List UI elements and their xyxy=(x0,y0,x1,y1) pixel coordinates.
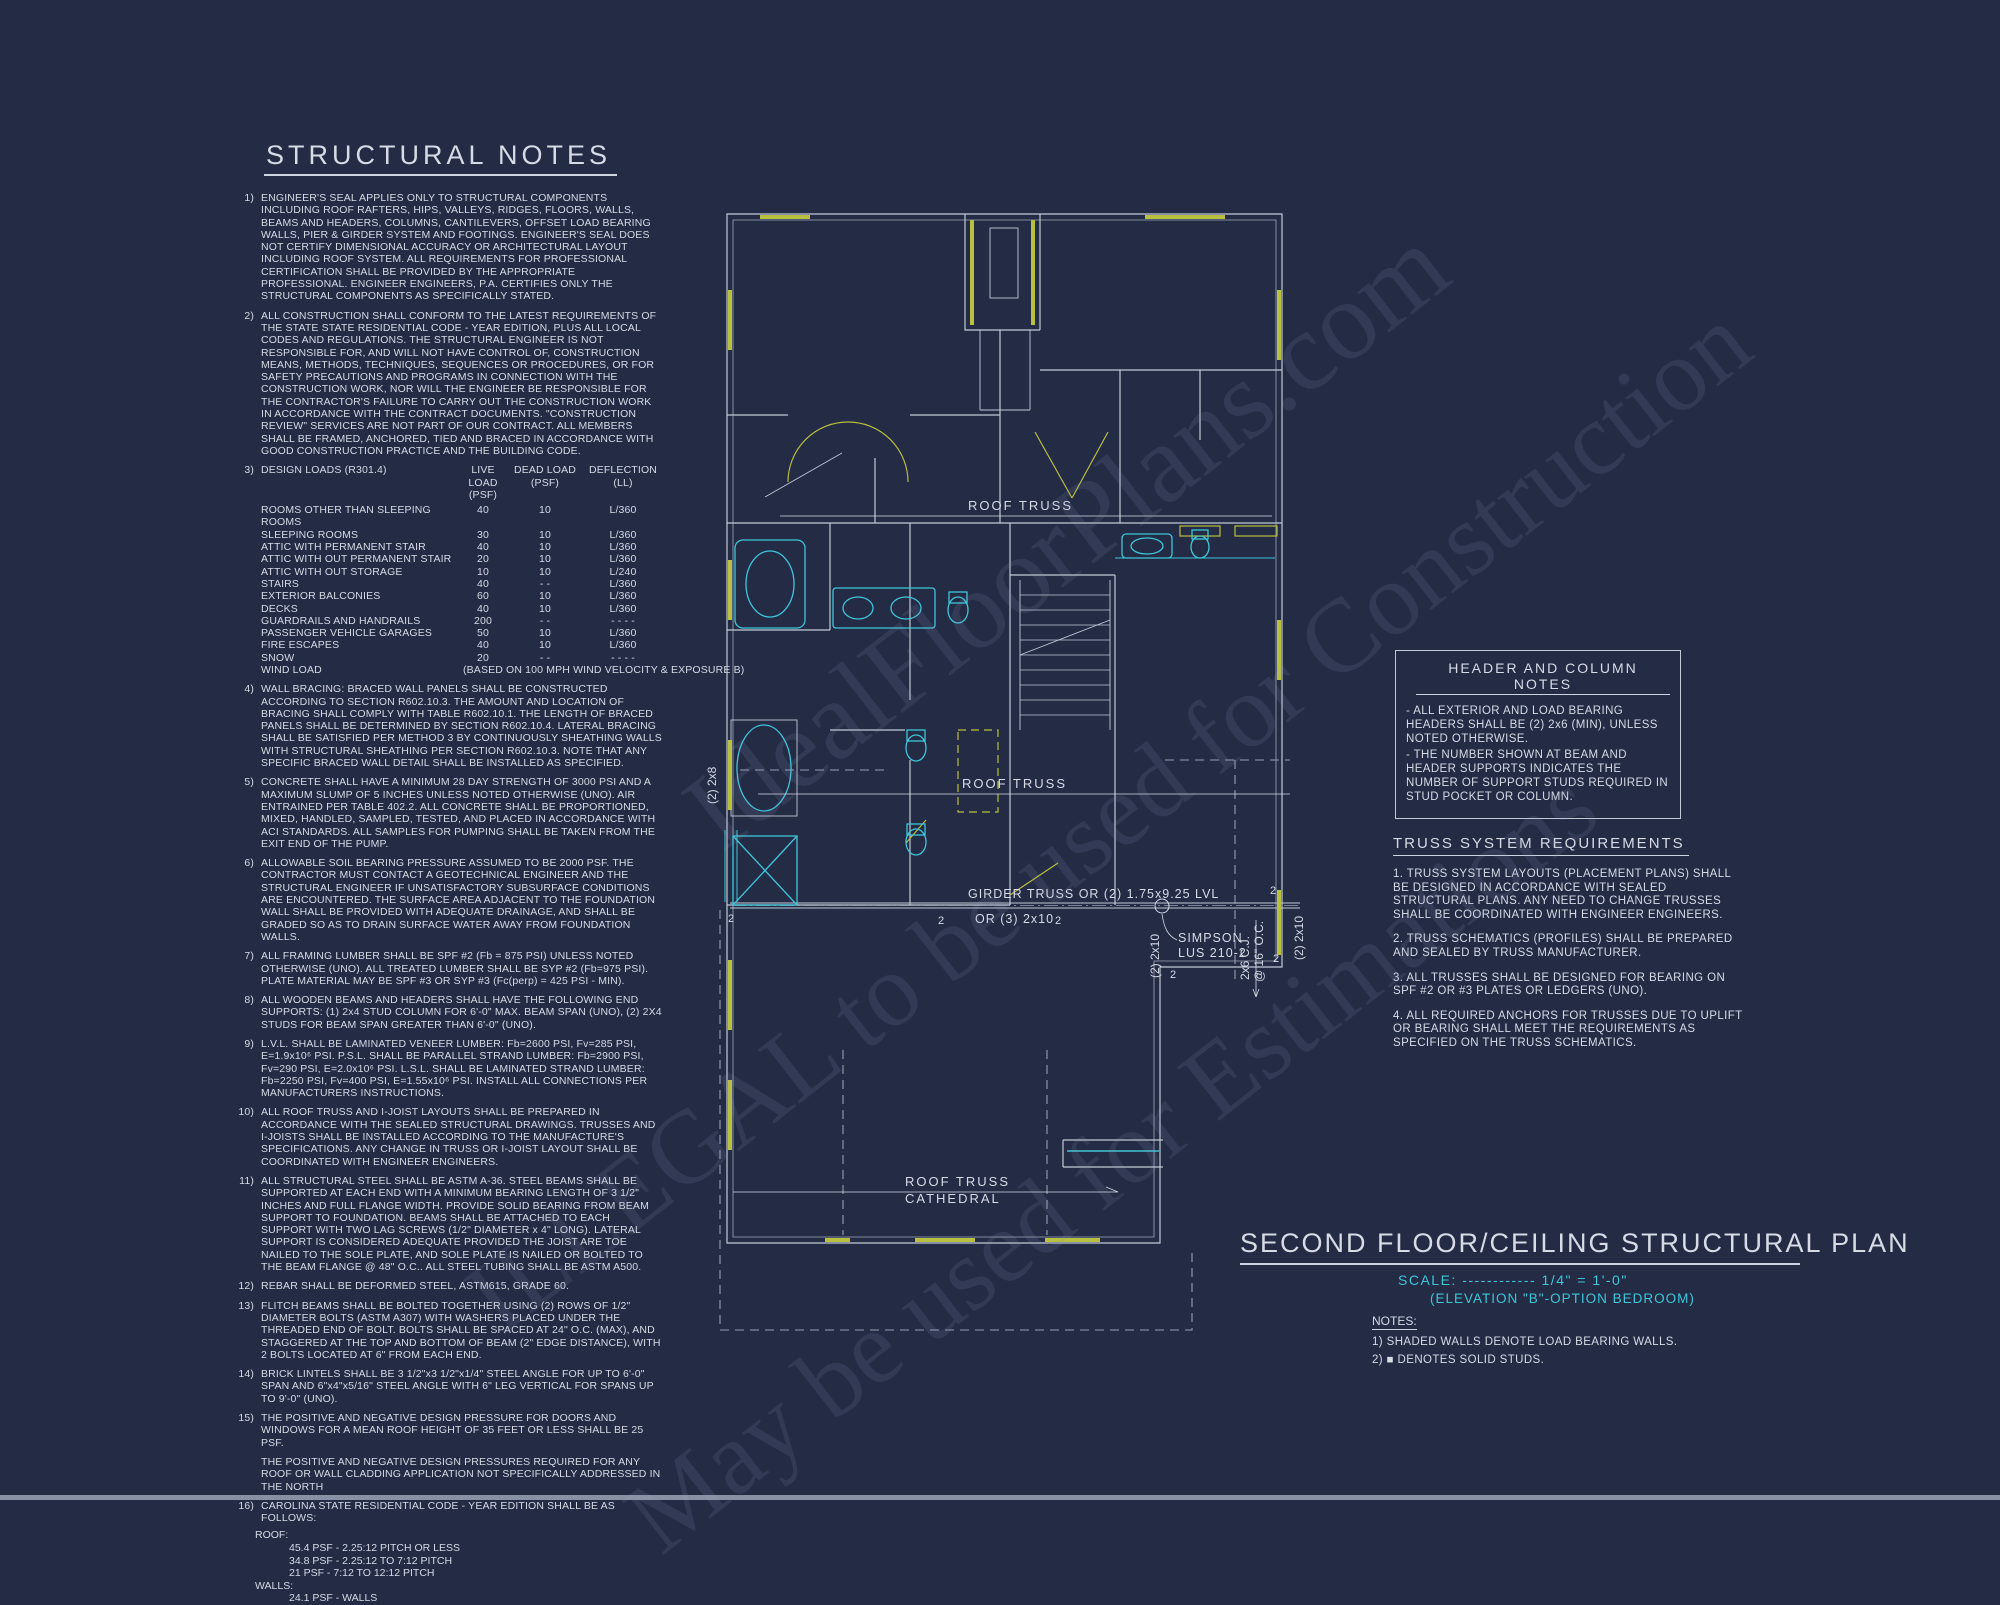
table-cell: 10 xyxy=(509,541,581,553)
note-8: 8) ALL WOODEN BEAMS AND HEADERS SHALL HA… xyxy=(238,994,662,1031)
note-number xyxy=(238,1456,254,1493)
note-text: L.V.L. SHALL BE LAMINATED VENEER LUMBER:… xyxy=(261,1038,662,1099)
note-number: 15) xyxy=(238,1412,254,1449)
note-number: 8) xyxy=(238,994,254,1031)
note-text: ALL ROOF TRUSS AND I-JOIST LAYOUTS SHALL… xyxy=(261,1106,662,1167)
truss-system-requirements: TRUSS SYSTEM REQUIREMENTS 1. TRUSS SYSTE… xyxy=(1393,835,1743,1062)
note-3-design-loads: 3) DESIGN LOADS (R301.4) LIVE LOAD (PSF)… xyxy=(238,464,662,676)
col-header-live-unit: (PSF) xyxy=(457,489,509,501)
title-note-2: 2) ■ DENOTES SOLID STUDS. xyxy=(1372,1354,1800,1366)
note-text: WALL BRACING: BRACED WALL PANELS SHALL B… xyxy=(261,683,662,769)
table-cell: 10 xyxy=(509,627,581,639)
truss-requirement: 4. ALL REQUIRED ANCHORS FOR TRUSSES DUE … xyxy=(1393,1010,1743,1051)
note-text: ALL CONSTRUCTION SHALL CONFORM TO THE LA… xyxy=(261,310,662,458)
plan-labels: ROOF TRUSS ROOF TRUSS GIRDER TRUSS OR (2… xyxy=(705,498,1306,1206)
note-number: 6) xyxy=(238,857,254,943)
design-loads-table: DESIGN LOADS (R301.4) LIVE LOAD (PSF) DE… xyxy=(261,464,665,676)
simpson-label-2: LUS 210-2 xyxy=(1178,946,1247,960)
table-cell: - - xyxy=(509,578,581,590)
table-cell: 10 xyxy=(509,603,581,615)
note-14: 14) BRICK LINTELS SHALL BE 3 1/2"x3 1/2"… xyxy=(238,1368,662,1405)
note-text: THE POSITIVE AND NEGATIVE DESIGN PRESSUR… xyxy=(261,1412,662,1449)
table-cell: L/360 xyxy=(581,504,665,529)
plumbing-fixtures xyxy=(725,530,1275,1151)
cathedral-label-2: CATHEDRAL xyxy=(905,1191,1001,1206)
note-11: 11) ALL STRUCTURAL STEEL SHALL BE ASTM A… xyxy=(238,1175,662,1273)
note-16-detail: ROOF: 45.4 PSF - 2.25:12 PITCH OR LESS 3… xyxy=(261,1529,662,1605)
toilet xyxy=(906,829,926,855)
design-loads-label: DESIGN LOADS (R301.4) xyxy=(261,464,457,504)
note-16: 16) CAROLINA STATE RESIDENTIAL CODE - YE… xyxy=(238,1500,662,1525)
note-number: 3) xyxy=(238,464,254,676)
title-notes-label: NOTES: xyxy=(1372,1314,1417,1330)
table-cell: L/360 xyxy=(581,541,665,553)
note-12: 12) REBAR SHALL BE DEFORMED STEEL, ASTM6… xyxy=(238,1280,662,1292)
table-cell: 200 xyxy=(457,615,509,627)
table-cell: 40 xyxy=(457,603,509,615)
table-cell: L/360 xyxy=(581,553,665,565)
scale-note: SCALE: ------------ 1/4" = 1'-0" xyxy=(1398,1272,1800,1288)
table-cell: L/360 xyxy=(581,578,665,590)
table-row-name: DECKS xyxy=(261,603,457,615)
walls-label: WALLS: xyxy=(255,1580,662,1593)
note-text: CAROLINA STATE RESIDENTIAL CODE - YEAR E… xyxy=(261,1500,662,1525)
table-cell: 20 xyxy=(457,652,509,664)
stud-count: 2 xyxy=(938,915,944,927)
table-cell: 10 xyxy=(509,590,581,602)
note-number: 2) xyxy=(238,310,254,458)
table-cell: L/360 xyxy=(581,529,665,541)
table-cell: 40 xyxy=(457,578,509,590)
stud-count: 2 xyxy=(1270,885,1276,897)
girder-truss-label: GIRDER TRUSS OR (2) 1.75x9.25 LVL xyxy=(968,887,1219,901)
col-header-defl: DEFLECTION (LL) xyxy=(581,464,665,504)
table-row-name: SNOW xyxy=(261,652,457,664)
note-text: ENGINEER'S SEAL APPLIES ONLY TO STRUCTUR… xyxy=(261,192,662,303)
wind-load-note: (BASED ON 100 MPH WIND VELOCITY & EXPOSU… xyxy=(457,664,665,676)
note-number: 16) xyxy=(238,1500,254,1525)
ceiling-joist-label-2: @ 16" O.C. xyxy=(1252,921,1266,982)
header-markers xyxy=(788,422,1277,895)
header-column-note: - ALL EXTERIOR AND LOAD BEARING HEADERS … xyxy=(1406,704,1670,746)
table-cell: 10 xyxy=(457,566,509,578)
note-text: ALL WOODEN BEAMS AND HEADERS SHALL HAVE … xyxy=(261,994,662,1031)
col-header-live-title: LIVE LOAD xyxy=(457,464,509,489)
table-cell: - - xyxy=(509,615,581,627)
table-cell: L/240 xyxy=(581,566,665,578)
note-5: 5) CONCRETE SHALL HAVE A MINIMUM 28 DAY … xyxy=(238,776,662,850)
table-cell: 40 xyxy=(457,639,509,651)
simpson-label-1: SIMPSON xyxy=(1178,931,1243,945)
walls-item: 24.1 PSF - WALLS xyxy=(289,1592,662,1605)
table-cell: 50 xyxy=(457,627,509,639)
title-block: SECOND FLOOR/CEILING STRUCTURAL PLAN SCA… xyxy=(1240,1228,1800,1366)
girder-alt-label: OR (3) 2x10 xyxy=(975,912,1054,926)
soaking-tub xyxy=(737,725,791,811)
table-cell: 20 xyxy=(457,553,509,565)
truss-requirement: 2. TRUSS SCHEMATICS (PROFILES) SHALL BE … xyxy=(1393,933,1743,960)
floor-plan: ROOF TRUSS ROOF TRUSS GIRDER TRUSS OR (2… xyxy=(700,200,1320,1380)
roof-truss-label-upper: ROOF TRUSS xyxy=(968,498,1073,513)
note-number: 7) xyxy=(238,950,254,987)
col-header-dead: DEAD LOAD (PSF) xyxy=(509,464,581,504)
header-column-notes-title: HEADER AND COLUMN NOTES xyxy=(1416,660,1670,695)
col-header-defl-title: DEFLECTION xyxy=(581,464,665,476)
truss-requirements-title: TRUSS SYSTEM REQUIREMENTS xyxy=(1393,835,1689,856)
note-number: 13) xyxy=(238,1300,254,1361)
note-text: THE POSITIVE AND NEGATIVE DESIGN PRESSUR… xyxy=(261,1456,662,1493)
sink xyxy=(891,597,921,619)
table-cell: L/360 xyxy=(581,590,665,602)
note-1: 1) ENGINEER'S SEAL APPLIES ONLY TO STRUC… xyxy=(238,192,662,303)
note-text: BRICK LINTELS SHALL BE 3 1/2"x3 1/2"x1/4… xyxy=(261,1368,662,1405)
beam-2x8-label: (2) 2x8 xyxy=(705,766,719,804)
table-cell: L/360 xyxy=(581,603,665,615)
roof-item: 34.8 PSF - 2.25:12 TO 7:12 PITCH xyxy=(289,1555,662,1568)
note-text: CONCRETE SHALL HAVE A MINIMUM 28 DAY STR… xyxy=(261,776,662,850)
note-number: 1) xyxy=(238,192,254,303)
wind-load-row: WIND LOAD xyxy=(261,664,457,676)
toilet xyxy=(948,597,968,623)
note-text: FLITCH BEAMS SHALL BE BOLTED TOGETHER US… xyxy=(261,1300,662,1361)
sink xyxy=(843,597,873,619)
table-row-name: EXTERIOR BALCONIES xyxy=(261,590,457,602)
table-cell: L/360 xyxy=(581,627,665,639)
note-4: 4) WALL BRACING: BRACED WALL PANELS SHAL… xyxy=(238,683,662,769)
col-header-live: LIVE LOAD (PSF) xyxy=(457,464,509,504)
stud-count: 2 xyxy=(1170,969,1176,981)
table-cell: 10 xyxy=(509,553,581,565)
note-9: 9) L.V.L. SHALL BE LAMINATED VENEER LUMB… xyxy=(238,1038,662,1099)
note-number: 4) xyxy=(238,683,254,769)
table-row-name: GUARDRAILS AND HANDRAILS xyxy=(261,615,457,627)
note-7: 7) ALL FRAMING LUMBER SHALL BE SPF #2 (F… xyxy=(238,950,662,987)
col-header-dead-unit: (PSF) xyxy=(509,477,581,489)
header-column-notes-box: HEADER AND COLUMN NOTES - ALL EXTERIOR A… xyxy=(1395,650,1681,819)
note-13: 13) FLITCH BEAMS SHALL BE BOLTED TOGETHE… xyxy=(238,1300,662,1361)
table-cell: - - xyxy=(509,652,581,664)
table-row-name: ATTIC WITH OUT STORAGE xyxy=(261,566,457,578)
sheet-bottom-edge xyxy=(0,1495,2000,1500)
truss-requirement: 3. ALL TRUSSES SHALL BE DESIGNED FOR BEA… xyxy=(1393,972,1743,999)
note-text: ALL STRUCTURAL STEEL SHALL BE ASTM A-36.… xyxy=(261,1175,662,1273)
note-number: 12) xyxy=(238,1280,254,1292)
table-row-name: FIRE ESCAPES xyxy=(261,639,457,651)
note-text: REBAR SHALL BE DEFORMED STEEL, ASTM615, … xyxy=(261,1280,662,1292)
roof-item: 21 PSF - 7:12 TO 12:12 PITCH xyxy=(289,1567,662,1580)
note-number: 5) xyxy=(238,776,254,850)
table-row-name: ATTIC WITH OUT PERMANENT STAIR xyxy=(261,553,457,565)
vanity xyxy=(833,588,935,628)
ceiling-joist-label-1: 2x6 C.J. xyxy=(1238,936,1252,980)
note-number: 11) xyxy=(238,1175,254,1273)
sheet-title: SECOND FLOOR/CEILING STRUCTURAL PLAN xyxy=(1240,1228,1800,1265)
col-header-defl-unit: (LL) xyxy=(581,477,665,489)
structural-notes-title: STRUCTURAL NOTES xyxy=(264,140,617,176)
plan-walls xyxy=(727,214,1300,1243)
table-cell: 10 xyxy=(509,566,581,578)
beam-2x10-label-b: (2) 2x10 xyxy=(1292,916,1306,960)
truss-requirement: 1. TRUSS SYSTEM LAYOUTS (PLACEMENT PLANS… xyxy=(1393,868,1743,922)
note-text: ALL FRAMING LUMBER SHALL BE SPF #2 (Fb =… xyxy=(261,950,662,987)
col-header-dead-title: DEAD LOAD xyxy=(509,464,581,476)
note-number: 14) xyxy=(238,1368,254,1405)
header-column-note: - THE NUMBER SHOWN AT BEAM AND HEADER SU… xyxy=(1406,748,1670,804)
structural-notes-section: STRUCTURAL NOTES 1) ENGINEER'S SEAL APPL… xyxy=(238,140,662,1605)
table-row-name: ATTIC WITH PERMANENT STAIR xyxy=(261,541,457,553)
note-15: 15) THE POSITIVE AND NEGATIVE DESIGN PRE… xyxy=(238,1412,662,1449)
note-10: 10) ALL ROOF TRUSS AND I-JOIST LAYOUTS S… xyxy=(238,1106,662,1167)
note-2: 2) ALL CONSTRUCTION SHALL CONFORM TO THE… xyxy=(238,310,662,458)
table-cell: 40 xyxy=(457,504,509,529)
table-cell: 10 xyxy=(509,529,581,541)
note-number: 9) xyxy=(238,1038,254,1099)
roof-label: ROOF: xyxy=(255,1529,662,1542)
note-6: 6) ALLOWABLE SOIL BEARING PRESSURE ASSUM… xyxy=(238,857,662,943)
note-15-continued: THE POSITIVE AND NEGATIVE DESIGN PRESSUR… xyxy=(238,1456,662,1493)
blueprint-sheet: { "colors":{"background":"#232b45","ink"… xyxy=(0,0,2000,1500)
table-cell: 40 xyxy=(457,541,509,553)
table-cell: - - - - xyxy=(581,652,665,664)
title-note-1: 1) SHADED WALLS DENOTE LOAD BEARING WALL… xyxy=(1372,1336,1800,1348)
note-number: 10) xyxy=(238,1106,254,1167)
table-row-name: SLEEPING ROOMS xyxy=(261,529,457,541)
table-row-name: STAIRS xyxy=(261,578,457,590)
stud-count: 2 xyxy=(1055,915,1061,927)
annotation-lines xyxy=(733,516,1290,1192)
roof-truss-label-mid: ROOF TRUSS xyxy=(962,776,1067,791)
table-row-name: PASSENGER VEHICLE GARAGES xyxy=(261,627,457,639)
stud-count: 2 xyxy=(728,913,734,925)
table-cell: 60 xyxy=(457,590,509,602)
cathedral-label-1: ROOF TRUSS xyxy=(905,1174,1010,1189)
table-cell: L/360 xyxy=(581,639,665,651)
stud-count: 2 xyxy=(1273,953,1279,965)
toilet xyxy=(906,735,926,761)
elevation-note: (ELEVATION "B"-OPTION BEDROOM) xyxy=(1430,1291,1800,1306)
table-cell: 30 xyxy=(457,529,509,541)
note-text: ALLOWABLE SOIL BEARING PRESSURE ASSUMED … xyxy=(261,857,662,943)
table-cell: 10 xyxy=(509,504,581,529)
beam-2x10-label-a: (2) 2x10 xyxy=(1148,934,1162,978)
roof-item: 45.4 PSF - 2.25:12 PITCH OR LESS xyxy=(289,1542,662,1555)
table-row-name: ROOMS OTHER THAN SLEEPING ROOMS xyxy=(261,504,457,529)
table-cell: 10 xyxy=(509,639,581,651)
table-cell: - - - - xyxy=(581,615,665,627)
